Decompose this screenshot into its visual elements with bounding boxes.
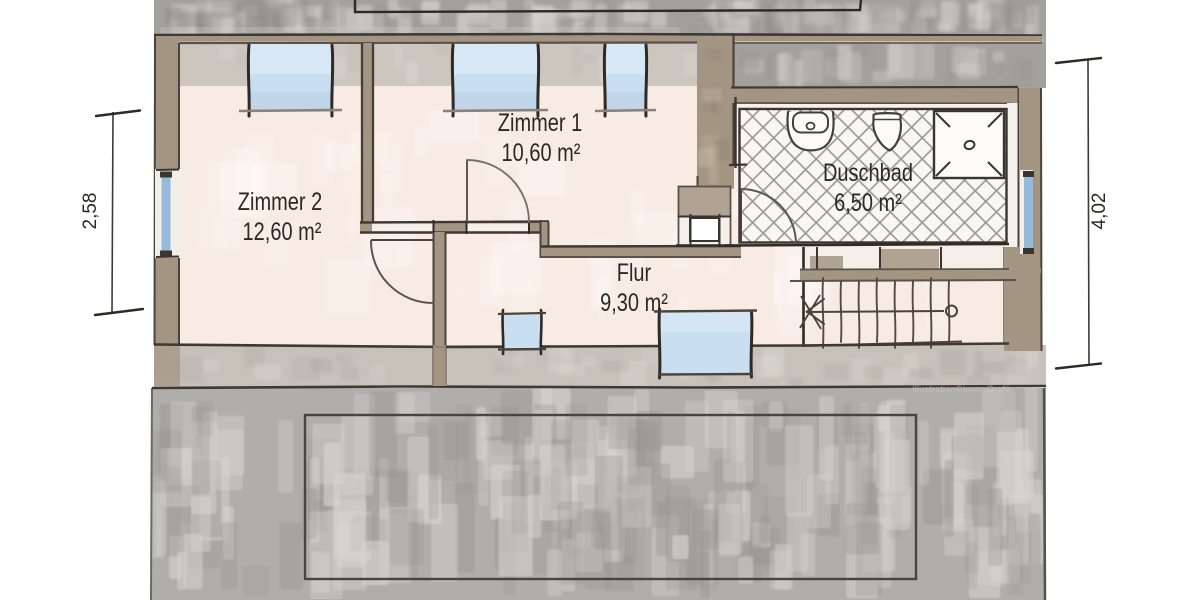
svg-text:Duschbad: Duschbad: [823, 159, 913, 187]
svg-text:Zimmer 2: Zimmer 2: [238, 188, 322, 216]
svg-text:6,50 m²: 6,50 m²: [834, 189, 902, 217]
svg-text:Flur: Flur: [617, 259, 652, 287]
svg-text:9,30 m²: 9,30 m²: [600, 289, 668, 317]
svg-text:10,60 m²: 10,60 m²: [502, 139, 581, 167]
svg-text:Zimmer 1: Zimmer 1: [498, 109, 582, 137]
svg-text:4,02: 4,02: [1089, 193, 1110, 230]
svg-text:2,58: 2,58: [80, 193, 101, 230]
svg-text:Illustration©ImmoGrafik: Illustration©ImmoGrafik: [912, 384, 1012, 395]
svg-text:12,60 m²: 12,60 m²: [243, 218, 322, 246]
